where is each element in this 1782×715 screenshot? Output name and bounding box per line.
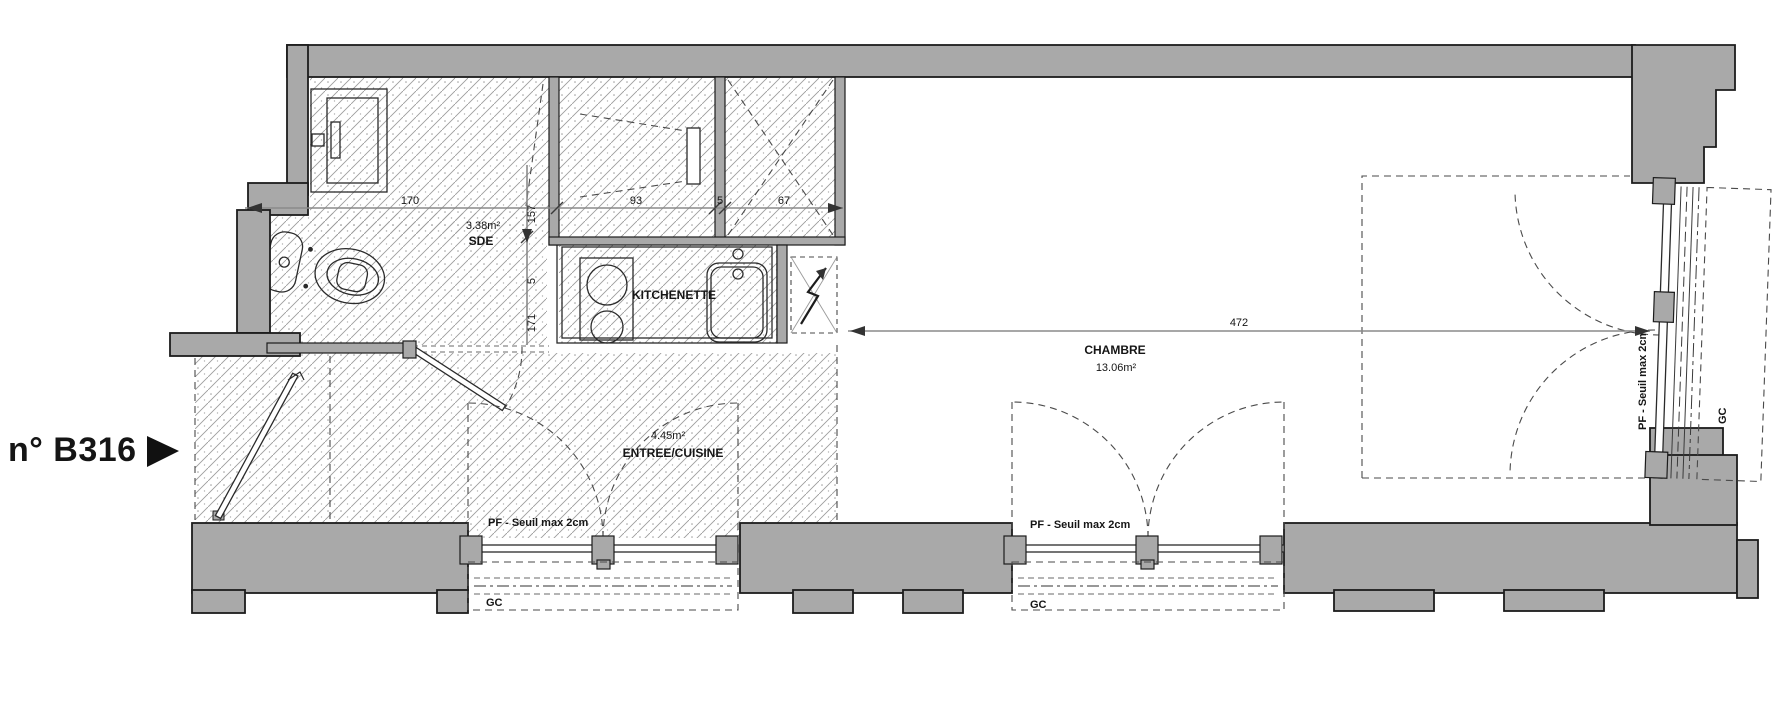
chambre-name: CHAMBRE	[1084, 343, 1145, 357]
entree-area: 4.45m²	[651, 430, 686, 442]
kitchen-top-wall	[549, 237, 845, 245]
floor-plan: PF - Seuil max 2cm GC PF - Seuil max 2cm…	[0, 0, 1782, 715]
sde-area: 3.38m²	[466, 220, 501, 232]
bottom-wall-a	[192, 523, 468, 593]
closet-partition	[715, 77, 725, 245]
chambre-partition	[835, 77, 845, 245]
unit-label-group: n° B316	[8, 431, 179, 469]
floor-plan-page: PF - Seuil max 2cm GC PF - Seuil max 2cm…	[0, 0, 1782, 715]
window-1-label: PF - Seuil max 2cm	[488, 517, 588, 529]
window-right-label: PF - Seuil max 2cm	[1637, 330, 1649, 430]
dim-67: 67	[778, 195, 790, 207]
dimension-chambre: 472	[848, 317, 1650, 336]
entree-name: ENTREE/CUISINE	[623, 446, 724, 460]
dim-5a: 5	[717, 195, 723, 207]
sde-name: SDE	[469, 234, 494, 248]
top-wall	[287, 45, 1635, 77]
sde-right-wall	[549, 77, 559, 245]
dim-93: 93	[630, 195, 642, 207]
dim-170: 170	[401, 195, 419, 207]
electrical-panel	[791, 257, 837, 333]
top-right-wall	[1632, 45, 1735, 183]
window-2: PF - Seuil max 2cm GC	[1004, 402, 1284, 611]
chambre-area: 13.06m²	[1096, 362, 1137, 374]
kitchenette-name: KITCHENETTE	[632, 288, 716, 302]
window-2-guard-label: GC	[1030, 599, 1047, 611]
dim-5b: 5	[526, 278, 538, 284]
window-right-guard-label: GC	[1717, 407, 1729, 424]
dim-171: 171	[526, 314, 538, 332]
entrance-arrow-icon	[147, 436, 179, 467]
bottom-wall-c	[1284, 523, 1737, 593]
sde-bottom-wall	[267, 343, 410, 353]
window-2-label: PF - Seuil max 2cm	[1030, 519, 1130, 531]
dim-157: 157	[526, 205, 538, 223]
bottom-wall-b	[740, 523, 1012, 593]
left-wall-mid	[237, 210, 270, 333]
left-wall-upper	[287, 45, 308, 195]
panel-wall	[777, 245, 787, 343]
window-1-guard-label: GC	[486, 597, 503, 609]
dim-472: 472	[1230, 317, 1248, 329]
unit-label: n° B316	[8, 431, 137, 469]
